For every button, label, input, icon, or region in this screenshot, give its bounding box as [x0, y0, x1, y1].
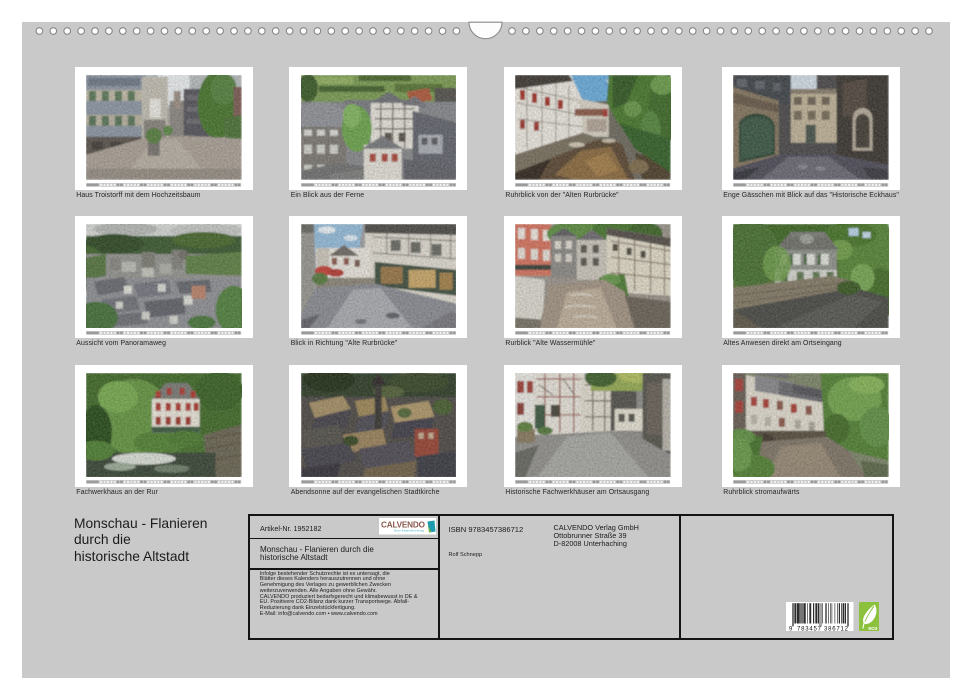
svg-text:eco: eco [868, 626, 878, 632]
svg-text:783457: 783457 [797, 626, 822, 631]
svg-text:386712: 386712 [824, 626, 849, 631]
svg-text:Dein Kalenderverlag: Dein Kalenderverlag [394, 529, 424, 533]
